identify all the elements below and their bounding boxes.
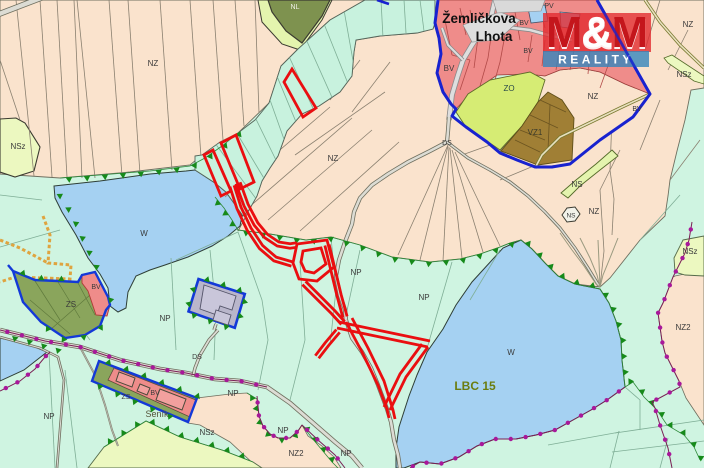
svg-text:W: W [140, 229, 148, 238]
svg-text:NZ2: NZ2 [288, 449, 304, 458]
svg-text:ZS: ZS [66, 300, 76, 309]
svg-text:NZ: NZ [148, 59, 159, 68]
svg-text:NP: NP [159, 314, 170, 323]
svg-text:NZ: NZ [328, 154, 339, 163]
svg-text:NSz: NSz [199, 428, 214, 437]
svg-text:NSz: NSz [682, 247, 697, 256]
svg-text:NZ: NZ [589, 207, 600, 216]
svg-text:REALITY: REALITY [558, 53, 634, 67]
svg-text:M&M: M&M [546, 8, 648, 57]
svg-text:NS: NS [566, 213, 576, 220]
svg-text:NSz: NSz [676, 70, 691, 79]
svg-text:NZ: NZ [588, 92, 599, 101]
svg-text:Seník: Seník [145, 409, 169, 419]
svg-text:NP: NP [43, 412, 54, 421]
svg-text:BV: BV [91, 284, 101, 291]
svg-text:ZS: ZS [122, 394, 131, 401]
svg-text:BV: BV [523, 48, 533, 55]
svg-text:ZO: ZO [503, 84, 514, 93]
svg-text:NP: NP [350, 268, 361, 277]
svg-text:BV: BV [444, 64, 455, 73]
svg-text:NP: NP [227, 389, 238, 398]
svg-text:NP: NP [277, 426, 288, 435]
svg-text:VZ1: VZ1 [528, 128, 543, 137]
svg-text:DS: DS [192, 354, 202, 361]
svg-text:NL: NL [291, 4, 300, 11]
svg-text:BV: BV [150, 390, 160, 397]
svg-text:Žemličkova: Žemličkova [442, 11, 516, 26]
svg-text:BV: BV [519, 20, 529, 27]
svg-text:DS: DS [442, 140, 452, 147]
svg-text:W: W [507, 348, 515, 357]
svg-text:NSz: NSz [10, 142, 25, 151]
svg-text:BV: BV [632, 106, 642, 113]
svg-text:NS: NS [571, 180, 582, 189]
svg-text:LBC 15: LBC 15 [454, 379, 496, 393]
svg-text:NP: NP [418, 293, 429, 302]
svg-text:NP: NP [340, 449, 351, 458]
svg-text:Lhota: Lhota [476, 29, 513, 44]
svg-text:NZ: NZ [683, 20, 694, 29]
svg-text:NZ2: NZ2 [675, 323, 691, 332]
